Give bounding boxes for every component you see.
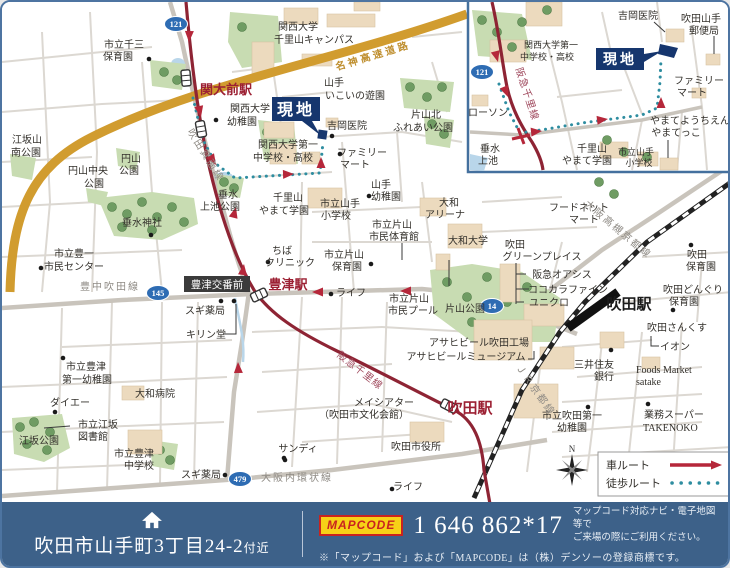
house-icon <box>141 511 163 529</box>
mapcode-note-line1: マップコード対応ナビ・電子地図等で <box>573 506 718 533</box>
map-label: 第一幼稚園 <box>62 373 112 386</box>
map-label: 吹田さんくす <box>647 321 707 334</box>
svg-text:121: 121 <box>170 19 183 29</box>
map-label: 関大前駅 <box>200 82 253 97</box>
map-label: 関西大学 <box>278 20 318 33</box>
compass-north-label: N <box>569 444 576 454</box>
poi-dot <box>219 299 224 304</box>
map-label: 業務スーパー <box>644 408 704 421</box>
map-label: 片山北 <box>411 108 441 121</box>
map-label: Foods Market <box>636 365 692 376</box>
map-label: ファミリー <box>337 148 387 159</box>
mapcode-note-line2: ご来場の際にご利用ください。 <box>573 532 718 545</box>
map-label: （吹田市文化会館） <box>319 408 409 421</box>
map-label: 市立豊津 <box>114 447 154 460</box>
map-label: 大和 <box>439 196 459 209</box>
map-label: TAKENOKO <box>643 423 698 434</box>
svg-text:479: 479 <box>234 474 247 484</box>
svg-text:14: 14 <box>488 301 497 311</box>
map-label: 吹田駅 <box>447 399 493 417</box>
map-label: 図書館 <box>78 430 108 443</box>
legend-walk-route-label: 徒歩ルート <box>606 476 661 490</box>
mapcode-logo: MAPCODE <box>319 515 403 537</box>
poi-dot <box>646 402 651 407</box>
map-label: 吹田 <box>505 238 525 251</box>
map-label: 市民プール <box>388 304 438 317</box>
map-label: ココカラファイン <box>528 284 608 296</box>
footer-mapcode-block: MAPCODE 1 646 862*17 マップコード対応ナビ・電子地図等で ご… <box>303 502 728 567</box>
map-label: 円山中央 <box>68 164 108 177</box>
map-label: 山手 <box>324 76 344 89</box>
footer-bar: 吹田市山手町3丁目24-2付近 MAPCODE 1 646 862*17 マップ… <box>2 502 728 566</box>
site-label-inset: 現地 <box>603 51 637 68</box>
map-label: 千里山 <box>273 192 303 204</box>
map-label: 関西大学 <box>230 102 270 115</box>
location-map: 現地 現地 豊津交番前 N 車ルート 徒歩ルート 12114514479121 <box>2 2 730 568</box>
map-label: 吹田どんぐり <box>663 283 723 296</box>
map-label: 豊津駅 <box>268 277 308 292</box>
map-label: 吉岡医院 <box>618 9 658 22</box>
mapcode-note: マップコード対応ナビ・電子地図等で ご来場の際にご利用ください。 <box>573 506 718 546</box>
map-label: やまてっこ <box>651 127 700 139</box>
route-badge: 121 <box>471 65 494 80</box>
map-label: 江坂公園 <box>19 435 59 447</box>
map-label: 上池 <box>478 154 498 167</box>
map-label: 関西大学第一 <box>258 138 318 151</box>
svg-text:121: 121 <box>476 67 489 77</box>
map-label: スギ薬局 <box>181 469 221 481</box>
map-label: 中学校・高校 <box>253 151 313 164</box>
site-label-main: 現地 <box>277 100 315 119</box>
map-label: アリーナ <box>425 209 465 221</box>
poi-dot <box>214 118 219 123</box>
map-label: 千里山 <box>577 143 607 155</box>
poi-dot <box>369 262 374 267</box>
poi-dot <box>329 292 334 297</box>
map-label: マート <box>340 160 370 171</box>
poi-dot <box>689 243 694 248</box>
map-label: 市民体育館 <box>369 230 419 243</box>
map-label: 南公園 <box>11 146 41 159</box>
poi-dot <box>671 308 676 313</box>
map-label: 吉岡医院 <box>327 119 367 132</box>
map-label: 市立山手 <box>618 146 654 157</box>
map-label: 江坂山 <box>12 134 42 146</box>
address-suffix: 付近 <box>244 541 270 555</box>
legend: 車ルート 徒歩ルート <box>598 452 730 496</box>
map-label: 幼稚園 <box>557 421 587 434</box>
map-label: 阪急オアシス <box>532 268 592 281</box>
map-label: 銀行 <box>594 370 614 383</box>
station-symbol <box>181 70 191 87</box>
map-label: 垂水 <box>218 189 238 201</box>
map-label: ダイエー <box>50 396 90 409</box>
site-address: 吹田市山手町3丁目24-2付近 <box>34 531 269 558</box>
map-label: 保育園 <box>669 295 699 308</box>
map-label: アサヒビールミュージアム <box>406 351 525 363</box>
police-box-label: 豊津交番前 <box>191 278 244 291</box>
map-label: 公園 <box>84 178 104 190</box>
map-label: 市立山手 <box>320 197 360 210</box>
map-label: 市立豊津 <box>66 360 106 373</box>
map-label: ユニクロ <box>529 297 569 309</box>
map-label: やまてようちえん <box>650 115 730 127</box>
map-label: satake <box>636 377 662 388</box>
poi-dot <box>53 410 58 415</box>
map-label: 保育園 <box>332 260 362 273</box>
map-label: キリン堂 <box>186 329 226 341</box>
map-label: いこいの遊園 <box>325 89 385 102</box>
footer-address-block: 吹田市山手町3丁目24-2付近 <box>2 511 302 558</box>
map-label: ライフ <box>393 481 423 493</box>
map-label: 市立片山 <box>372 218 412 231</box>
map-label: 千里山キャンパス <box>274 34 354 46</box>
map-label: ファミリー <box>674 76 724 87</box>
poi-dot <box>61 356 66 361</box>
poi-dot <box>223 473 228 478</box>
map-label: 市立片山 <box>324 248 364 261</box>
map-label: イオン <box>660 341 690 353</box>
map-label: 三井住友 <box>574 358 614 371</box>
poi-dot <box>330 134 335 139</box>
poi-dot <box>149 233 154 238</box>
route-badge: 121 <box>165 17 188 32</box>
poi-dot <box>586 405 591 410</box>
map-label: やまて学園 <box>259 204 309 217</box>
map-label: やまて学園 <box>562 154 612 167</box>
police-box-sign: 豊津交番前 <box>184 276 250 292</box>
map-label: 中学校 <box>124 459 154 472</box>
map-label: 大阪内環状線 <box>261 471 333 484</box>
map-label: スギ薬局 <box>185 305 225 317</box>
map-label: 市立千三 <box>104 38 144 51</box>
address-text: 吹田市山手町3丁目24-2 <box>34 536 243 557</box>
map-label: グリーンプレイス <box>503 250 582 263</box>
map-label: 小学校 <box>625 157 652 168</box>
map-label: 上池公園 <box>200 200 240 213</box>
map-label: 大和病院 <box>135 387 175 400</box>
map-label: 山手 <box>371 178 391 191</box>
map-label: 中学校・高校 <box>520 51 574 62</box>
location-map-page: 現地 現地 豊津交番前 N 車ルート 徒歩ルート 12114514479121 <box>0 0 730 568</box>
map-label: 豊中吹田線 <box>80 280 140 293</box>
map-label: ちば <box>272 245 292 257</box>
map-label: 保育園 <box>103 50 133 63</box>
map-label: ライフ <box>336 287 366 299</box>
legend-car-route-label: 車ルート <box>606 458 650 472</box>
map-label: 関西大学第一 <box>524 39 578 50</box>
svg-text:145: 145 <box>152 288 165 298</box>
map-label: 吹田駅 <box>606 295 652 313</box>
map-label: 吹田市役所 <box>391 440 441 453</box>
map-label: 垂水 <box>480 143 500 155</box>
map-label: 市立江坂 <box>78 418 118 431</box>
map-label: 幼稚園 <box>227 115 257 128</box>
poi-dot <box>39 266 44 271</box>
map-label: 保育園 <box>686 260 716 273</box>
route-badge: 145 <box>147 286 170 301</box>
poi-dot <box>609 348 614 353</box>
map-label: 市民センター <box>44 260 104 273</box>
map-label: 公園 <box>119 165 139 177</box>
map-label: マート <box>677 88 707 99</box>
map-label: 吹田山手 <box>681 12 721 25</box>
poi-dot <box>232 299 237 304</box>
map-label: ふれあい公園 <box>393 122 453 134</box>
route-badge: 479 <box>229 472 252 487</box>
map-label: 郵便局 <box>689 24 719 37</box>
map-label: 市立片山 <box>389 292 429 305</box>
map-label: 市立豊一 <box>54 247 94 260</box>
map-label: 垂水神社 <box>122 216 162 229</box>
poi-dot <box>282 456 287 461</box>
map-label: クリニック <box>265 257 315 269</box>
map-label: 吹田 <box>687 248 707 261</box>
poi-dot <box>147 57 152 62</box>
map-label: 片山公園 <box>445 302 485 315</box>
map-label: 円山 <box>121 153 141 165</box>
map-label: ローソン <box>468 108 508 119</box>
map-label: 小学校 <box>321 209 351 222</box>
map-label: サンディ <box>278 442 317 455</box>
map-label: アサヒビール吹田工場 <box>429 336 529 349</box>
map-label: 大和大学 <box>448 234 488 247</box>
map-label: 幼稚園 <box>371 190 401 203</box>
map-label: メイシアター <box>354 397 414 409</box>
mapcode-value: 1 646 862*17 <box>413 512 563 540</box>
trademark-note: ※「マップコード」および「MAPCODE」は（株）デンソーの登録商標です。 <box>319 549 718 564</box>
